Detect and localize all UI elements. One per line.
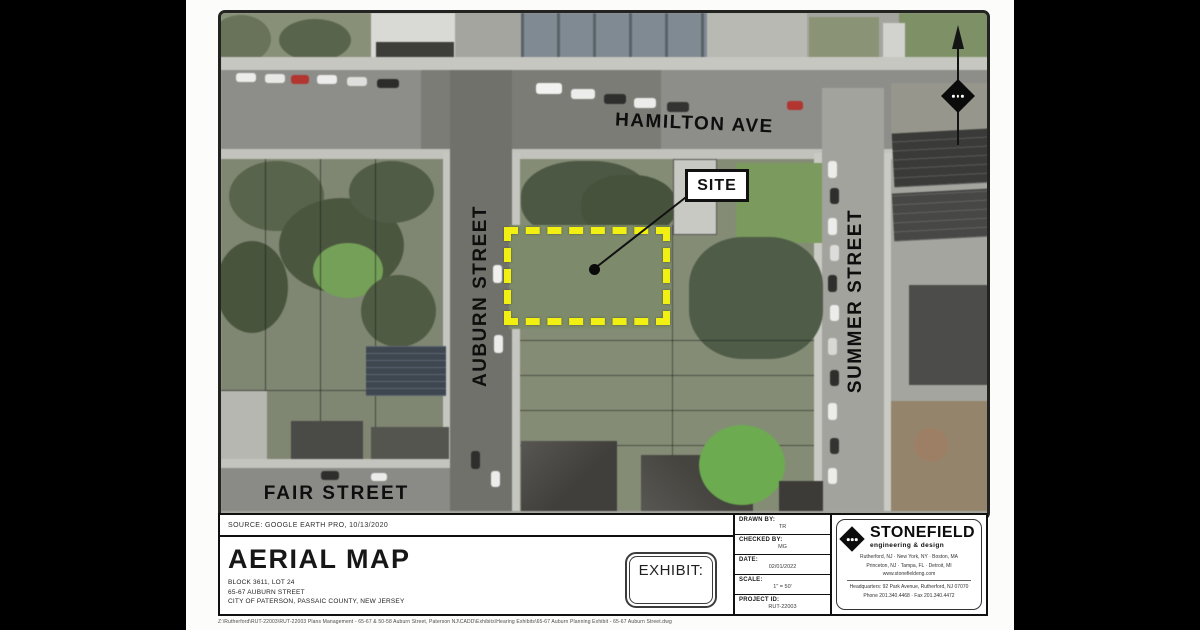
site-outline — [504, 227, 670, 325]
car — [377, 79, 399, 88]
car — [491, 471, 500, 487]
firm-website: www.stonefieldeng.com — [883, 571, 936, 577]
building — [707, 13, 807, 63]
firm-cities-line2: Princeton, NJ · Tampa, FL · Detroit, MI — [860, 562, 958, 571]
field-label: DATE: — [739, 557, 830, 563]
field-value: RUT-22003 — [735, 604, 830, 610]
car — [828, 218, 837, 235]
car — [830, 305, 839, 321]
exhibit-stamp-box: EXHIBIT: — [625, 552, 717, 608]
firm-block: STONEFIELD engineering & design Rutherfo… — [832, 515, 986, 614]
tree-canopy — [349, 161, 434, 223]
tree-canopy — [699, 425, 785, 505]
car — [317, 75, 337, 84]
stonefield-diamond-icon — [839, 526, 864, 551]
car — [493, 265, 502, 283]
auburn-street-label: AUBURN STREET — [470, 201, 492, 391]
summer-street-label: SUMMER STREET — [845, 206, 867, 396]
field-label: PROJECT ID: — [739, 597, 830, 603]
car — [347, 77, 367, 86]
title-block: SOURCE: GOOGLE EARTH PRO, 10/13/2020 AER… — [218, 513, 988, 616]
car — [291, 75, 309, 84]
sidewalk — [221, 459, 450, 468]
building — [779, 481, 823, 511]
field-label: DRAWN BY: — [739, 517, 830, 523]
firm-name: STONEFIELD — [870, 525, 975, 541]
parcel-municipality: CITY OF PATERSON, PASSAIC COUNTY, NEW JE… — [228, 597, 405, 607]
car — [828, 275, 837, 292]
drawn-by-field: DRAWN BY: TR — [735, 515, 830, 535]
building — [892, 128, 990, 187]
car — [571, 89, 595, 99]
building — [376, 42, 454, 58]
tree-canopy — [279, 19, 351, 61]
parcel-block-lot: BLOCK 3611, LOT 24 — [228, 578, 405, 588]
field-label: SCALE: — [739, 577, 830, 583]
sidewalk — [221, 57, 990, 71]
firm-block-inner: STONEFIELD engineering & design Rutherfo… — [836, 519, 982, 610]
north-arrow-head — [952, 25, 964, 49]
car — [471, 451, 480, 469]
exhibit-stamp-label: EXHIBIT: — [629, 556, 713, 604]
building — [366, 346, 446, 396]
source-note: SOURCE: GOOGLE EARTH PRO, 10/13/2020 — [220, 515, 733, 537]
firm-divider — [847, 580, 971, 581]
sidewalk — [884, 153, 891, 511]
date-field: DATE: 02/01/2022 — [735, 555, 830, 575]
car — [828, 403, 837, 420]
car — [830, 188, 839, 204]
property-line — [520, 410, 814, 411]
property-line — [520, 375, 814, 376]
parcel-info: BLOCK 3611, LOT 24 65-67 AUBURN STREET C… — [228, 578, 405, 607]
car — [828, 468, 837, 484]
firm-phone-fax: Phone 201.340.4468 · Fax 201.340.4472 — [863, 592, 954, 601]
file-path: Z:\Rutherford\RUT-22003\RUT-22003 Plans … — [218, 619, 672, 625]
tree-canopy — [218, 241, 288, 333]
property-line — [520, 340, 814, 341]
project-id-field: PROJECT ID: RUT-22003 — [735, 595, 830, 614]
title-block-left: SOURCE: GOOGLE EARTH PRO, 10/13/2020 AER… — [220, 515, 735, 614]
field-value: 1" = 50' — [735, 584, 830, 590]
scale-field: SCALE: 1" = 50' — [735, 575, 830, 595]
stonefield-logo: STONEFIELD engineering & design — [843, 525, 975, 549]
car — [236, 73, 256, 82]
building — [521, 441, 617, 511]
car — [830, 438, 839, 454]
car — [321, 471, 339, 480]
firm-cities-line1: Rutherford, NJ · New York, NY · Boston, … — [860, 553, 958, 562]
field-value: TR — [735, 524, 830, 530]
dirt-lot — [891, 401, 990, 511]
car — [634, 98, 656, 108]
firm-headquarters: Headquarters: 92 Park Avenue, Rutherford… — [850, 583, 969, 592]
site-label: SITE — [685, 169, 749, 202]
car — [371, 473, 387, 481]
field-label: CHECKED BY: — [739, 537, 830, 543]
firm-tagline: engineering & design — [870, 542, 944, 549]
car — [604, 94, 626, 104]
building — [221, 391, 267, 461]
property-line — [375, 159, 376, 459]
title-block-fields: DRAWN BY: TR CHECKED BY: MG DATE: 02/01/… — [735, 515, 832, 614]
car — [830, 245, 839, 261]
aerial-map: SITE HAMILTON AVE AUBURN STREET SUMMER S… — [218, 10, 990, 520]
car — [667, 102, 689, 112]
parcel-address: 65-67 AUBURN STREET — [228, 588, 405, 598]
building — [909, 285, 990, 385]
exhibit-sheet: SITE HAMILTON AVE AUBURN STREET SUMMER S… — [186, 0, 1014, 630]
tree-canopy — [361, 275, 436, 347]
field-value: 02/01/2022 — [735, 564, 830, 570]
site-marker-dot — [589, 264, 600, 275]
property-line — [320, 159, 321, 459]
fair-street-label: FAIR STREET — [249, 483, 424, 505]
building — [291, 421, 363, 461]
car — [830, 370, 839, 386]
car — [828, 338, 837, 355]
sidewalk — [512, 153, 520, 511]
car — [536, 83, 562, 94]
car — [265, 74, 285, 83]
field-value: MG — [735, 544, 830, 550]
car — [828, 161, 837, 178]
car — [787, 101, 803, 110]
car — [494, 335, 503, 353]
checked-by-field: CHECKED BY: MG — [735, 535, 830, 555]
building — [892, 188, 990, 241]
